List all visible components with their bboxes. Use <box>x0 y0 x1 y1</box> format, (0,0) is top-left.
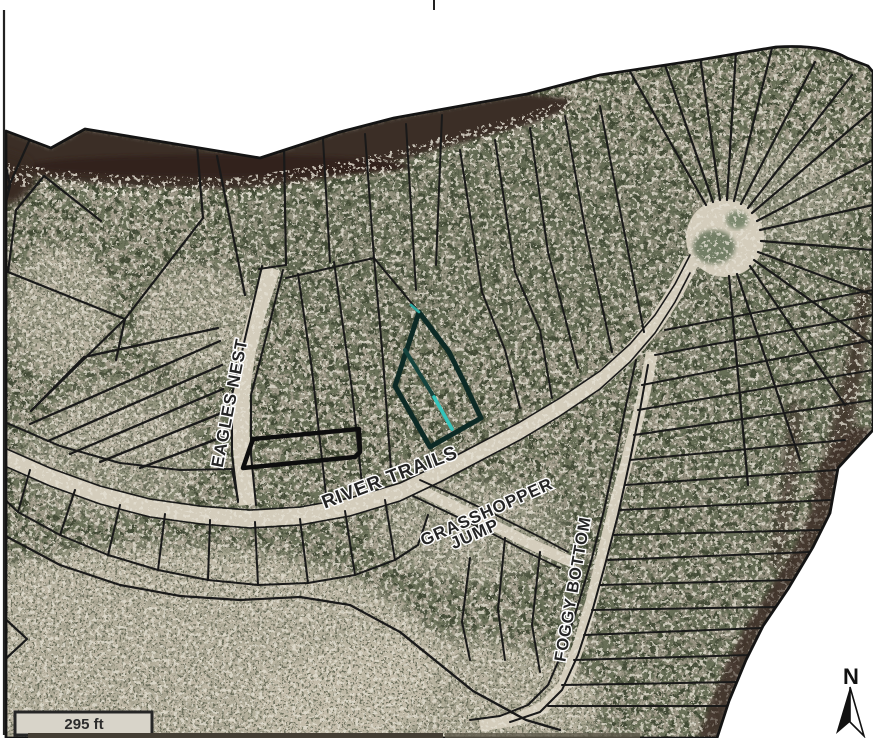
svg-text:N: N <box>843 664 859 689</box>
svg-text:295 ft: 295 ft <box>64 716 103 733</box>
